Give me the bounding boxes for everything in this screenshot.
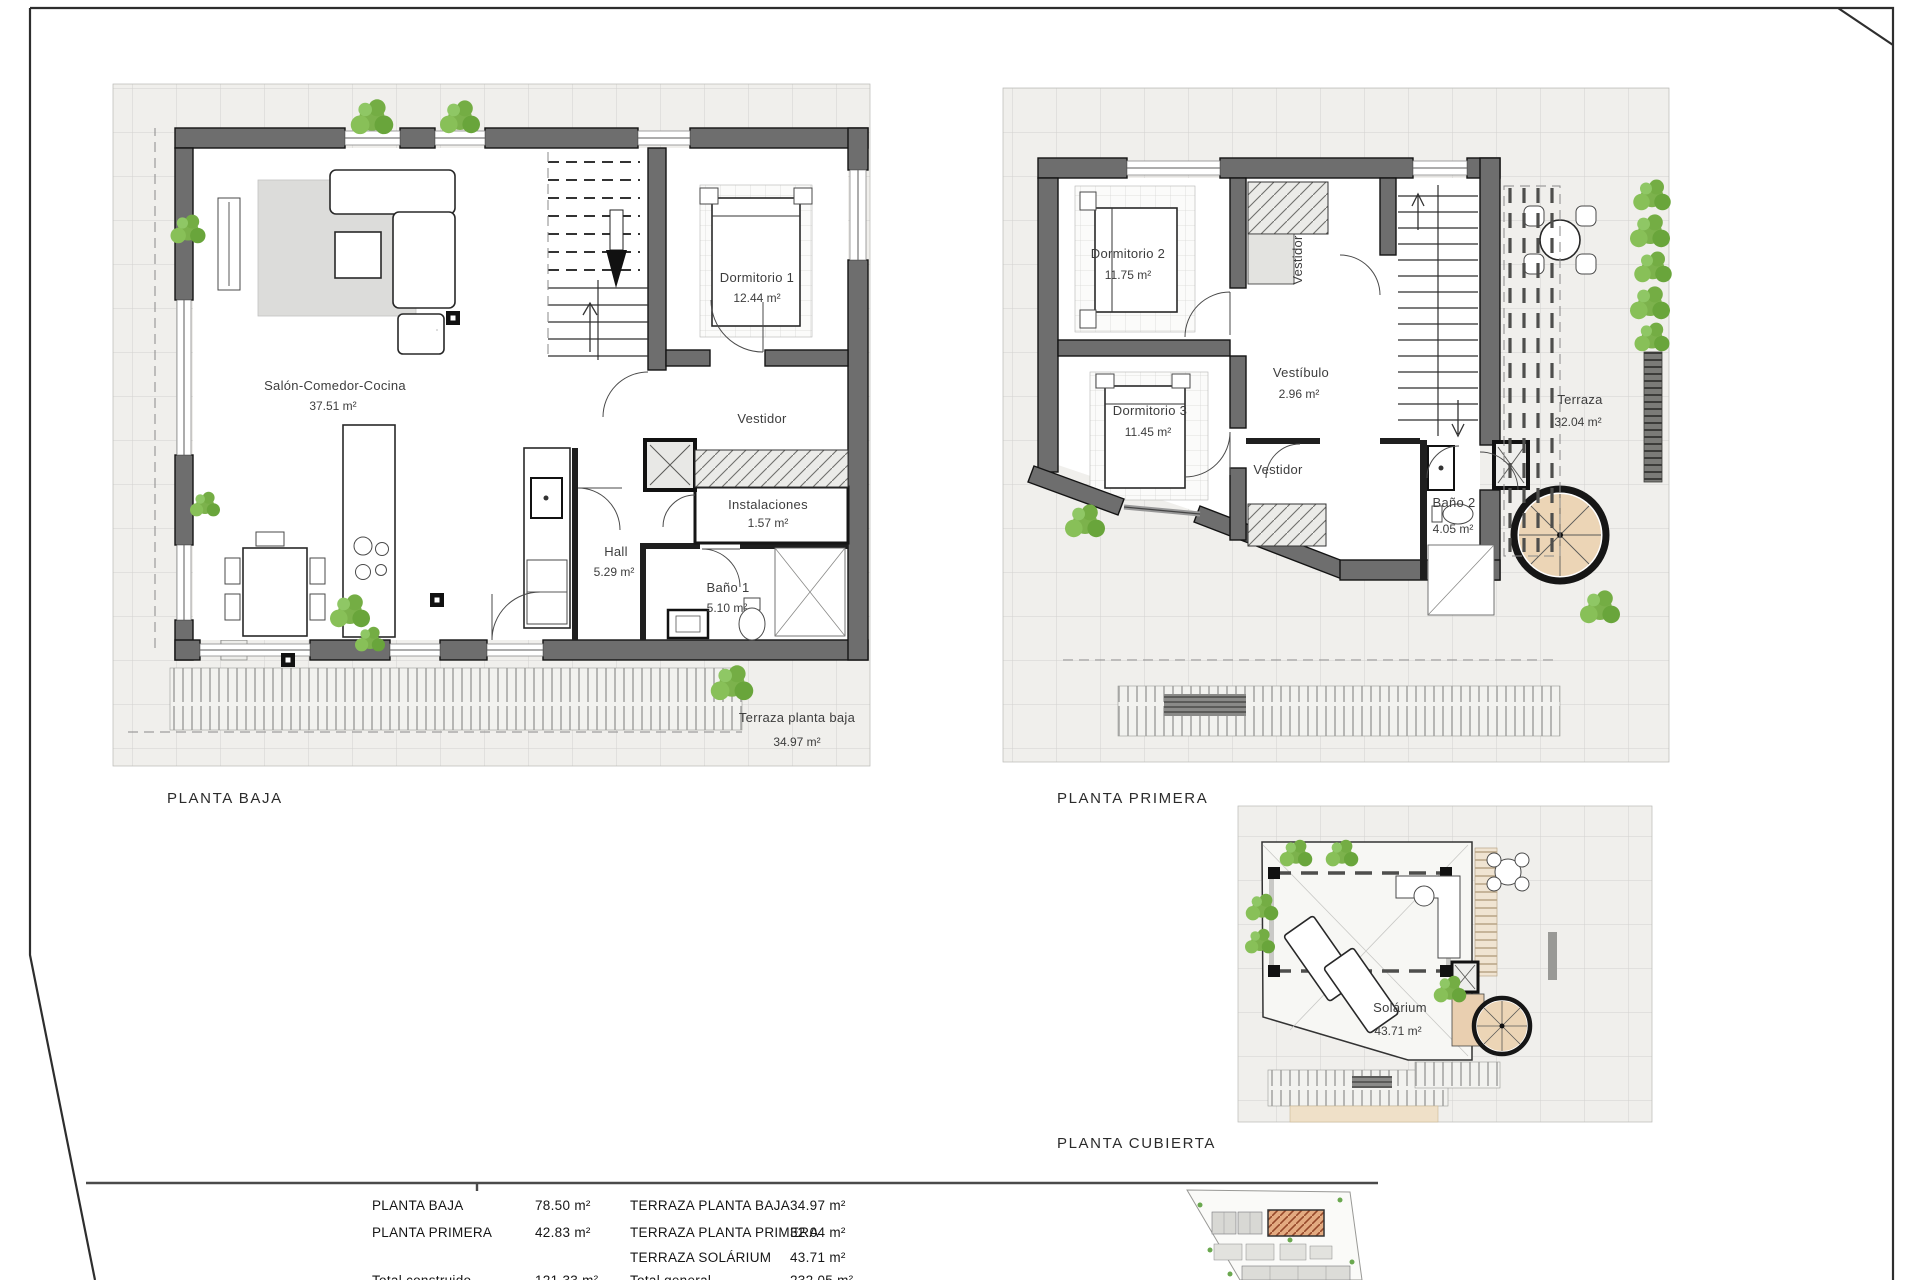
room-label-bano2: Baño 2 — [1432, 495, 1475, 510]
site-plan-thumbnail — [1187, 1190, 1362, 1280]
room-label-salon: Salón-Comedor-Cocina — [264, 378, 406, 393]
spiral-stair-icon — [1474, 998, 1530, 1054]
summary-row-value: 34.97 m² — [790, 1198, 846, 1213]
room-label-instalaciones: Instalaciones — [728, 497, 808, 512]
summary-row-label: PLANTA PRIMERA — [372, 1225, 492, 1240]
room-label-bano1: Baño 1 — [706, 580, 749, 595]
area-summary-table: PLANTA BAJA 78.50 m² TERRAZA PLANTA BAJA… — [372, 1198, 854, 1280]
summary-row-label: Total construido — [372, 1273, 471, 1280]
plan-title-cubierta: PLANTA CUBIERTA — [1057, 1135, 1216, 1152]
summary-row-value: 78.50 m² — [535, 1198, 591, 1213]
room-label-vestibulo: Vestíbulo — [1273, 365, 1329, 380]
first-floor-plan: Dormitorio 2 11.75 m² Dormitorio 3 11.45… — [1003, 88, 1672, 807]
room-area-bano2: 4.05 m² — [1433, 522, 1474, 536]
trellis-strip — [1644, 352, 1662, 482]
summary-row-value: 232.05 m² — [790, 1273, 854, 1280]
room-area-hall: 5.29 m² — [594, 565, 635, 579]
summary-row-label: TERRAZA PLANTA BAJA — [630, 1198, 790, 1213]
room-label-terraza-p1: Terraza — [1557, 392, 1603, 407]
wardrobe-hatch — [695, 450, 848, 487]
room-area-salon: 37.51 m² — [309, 399, 356, 413]
room-label-terraza-pb: Terraza planta baja — [739, 710, 856, 725]
doormat — [1164, 694, 1246, 716]
summary-row-value: 43.71 m² — [790, 1250, 846, 1265]
room-label-solarium: Solárium — [1373, 1000, 1427, 1015]
ground-floor-plan: Salón-Comedor-Cocina 37.51 m² Dormitorio… — [113, 84, 870, 807]
plan-title-baja: PLANTA BAJA — [167, 790, 283, 807]
room-area-terraza-p1: 32.04 m² — [1554, 415, 1601, 429]
summary-row-label: PLANTA BAJA — [372, 1198, 464, 1213]
summary-row-label: Total general — [630, 1273, 711, 1280]
wardrobe-gray — [1248, 234, 1294, 284]
room-area-terraza-pb: 34.97 m² — [773, 735, 820, 749]
deck-strip — [1415, 1062, 1500, 1088]
room-label-vestidor-top: Vestidor — [1290, 235, 1305, 285]
room-label-vestidor: Vestidor — [737, 411, 787, 426]
bedroom1-furniture — [700, 188, 812, 326]
summary-row-label: TERRAZA SOLÁRIUM — [630, 1250, 771, 1265]
room-area-instalaciones: 1.57 m² — [748, 516, 789, 530]
room-label-dormitorio2: Dormitorio 2 — [1091, 246, 1165, 261]
roof-plan: Solárium 43.71 m² PLANTA CUBIERTA — [1057, 806, 1652, 1152]
room-label-dormitorio3: Dormitorio 3 — [1113, 403, 1187, 418]
room-area-dormitorio1: 12.44 m² — [733, 291, 780, 305]
floorplan-canvas: BH — [0, 0, 1920, 1280]
summary-row-value: 32.04 m² — [790, 1225, 846, 1240]
drawing-sheet: BH — [0, 0, 1920, 1280]
plan-title-primera: PLANTA PRIMERA — [1057, 790, 1208, 807]
room-area-dormitorio3: 11.45 m² — [1125, 425, 1171, 439]
highlighted-plot — [1268, 1210, 1324, 1236]
room-area-dormitorio2: 11.75 m² — [1105, 268, 1151, 282]
beige-band — [1290, 1106, 1438, 1122]
room-area-solarium: 43.71 m² — [1374, 1024, 1421, 1038]
gray-bar — [1548, 932, 1557, 980]
summary-row-value: 42.83 m² — [535, 1225, 591, 1240]
room-label-vestidor-bajo: Vestidor — [1253, 462, 1303, 477]
room-label-hall: Hall — [604, 544, 628, 559]
room-area-bano1: 5.10 m² — [707, 601, 748, 615]
deck-strip — [170, 668, 742, 730]
room-area-vestibulo: 2.96 m² — [1279, 387, 1320, 401]
room-label-dormitorio1: Dormitorio 1 — [720, 270, 794, 285]
doormat — [1352, 1076, 1392, 1088]
summary-row-value: 121.33 m² — [535, 1273, 599, 1280]
wardrobe-hatch-bottom — [1248, 504, 1326, 546]
wardrobe-hatch-top — [1248, 182, 1328, 234]
